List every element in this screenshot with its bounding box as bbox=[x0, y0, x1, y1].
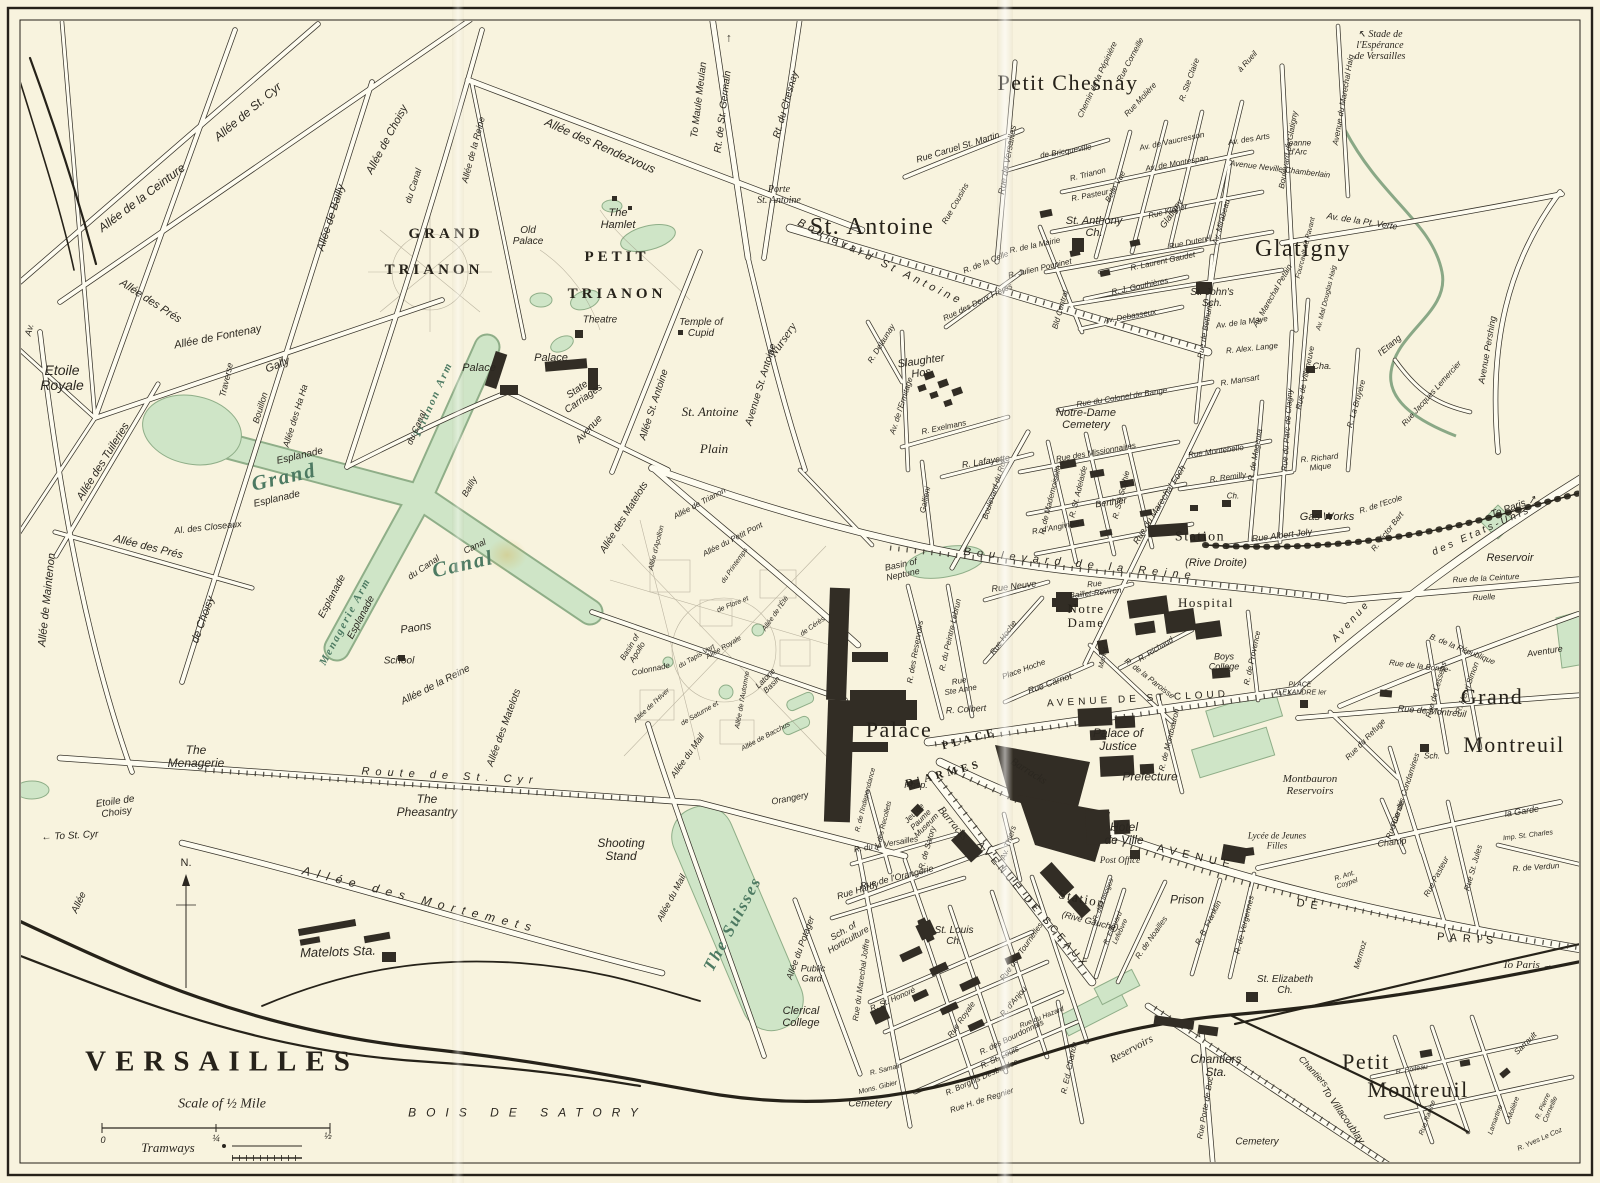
map-label: Rue du Hazard bbox=[1019, 1006, 1065, 1031]
map-label: R. des Recollets bbox=[874, 800, 894, 851]
map-label: Rue Pasteur bbox=[1423, 855, 1451, 898]
map-label: Rue St. Jules bbox=[1463, 844, 1484, 892]
map-label: Allée des Ha Ha bbox=[282, 383, 310, 448]
map-label: Rue du Marechal Foch bbox=[1132, 464, 1188, 546]
map-label: Glatigny bbox=[1159, 198, 1186, 231]
map-label: R. Pasteur bbox=[1071, 188, 1110, 204]
map-label: R. du V. Versailles bbox=[853, 835, 918, 855]
map-label: R. de l'Ecole bbox=[1358, 494, 1403, 516]
map-label: Allée de l'Automne bbox=[734, 671, 752, 730]
map-label: Rt. de St. Germain bbox=[714, 70, 735, 154]
map-label: Public Gard. bbox=[801, 964, 826, 983]
map-label: du Canal bbox=[406, 554, 441, 582]
map-label: Trianon Arm bbox=[412, 360, 456, 439]
map-label: Grand bbox=[1461, 685, 1523, 709]
map-label: de Choisy bbox=[190, 595, 218, 645]
map-label: R. Lafayette bbox=[961, 453, 1010, 470]
map-label: Bailly bbox=[460, 475, 479, 498]
map-label: du Tapis Vert bbox=[677, 644, 716, 671]
map-label: St. John's Sch. bbox=[1190, 288, 1234, 310]
map-label: Av. de la Pt. Verte bbox=[1326, 212, 1398, 233]
map-label: Av. de Montespan bbox=[1145, 154, 1209, 174]
map-label: Nursery bbox=[767, 320, 800, 359]
map-label: R. d'Angiviller bbox=[1031, 519, 1080, 537]
map-label: Rue Albert Joly bbox=[1251, 527, 1312, 544]
map-label: R. Remilly bbox=[1209, 471, 1246, 485]
map-label: Gas Works bbox=[1300, 512, 1354, 524]
map-label: Rue Cousins bbox=[941, 182, 971, 226]
map-label: Rue des Tournelles bbox=[999, 921, 1045, 982]
map-label: Allée des Prés bbox=[117, 278, 183, 327]
map-label: Allée d'Apollon bbox=[648, 525, 666, 572]
map-label: Palace of Justice bbox=[1093, 727, 1143, 753]
map-label: Bld Central bbox=[1051, 290, 1070, 330]
map-label: R. Boileau bbox=[1395, 1063, 1428, 1076]
map-label: Molière bbox=[1507, 1096, 1522, 1120]
map-label: R. Ed. Charton bbox=[1060, 1041, 1079, 1095]
map-label: Av. Mirabeau bbox=[1211, 199, 1232, 246]
map-label: R. des Reservoirs bbox=[906, 620, 926, 684]
map-label: Cemetery bbox=[848, 1100, 891, 1111]
map-label: Rue de Villeneuve bbox=[1295, 345, 1317, 410]
map-label: Av. de l'Ermitage bbox=[889, 376, 916, 435]
map-label: R. Pierre Corneille bbox=[1529, 1081, 1564, 1136]
map-label: Jeanne d'Arc bbox=[1285, 139, 1311, 156]
map-label: Palace bbox=[462, 363, 496, 375]
map-label: St. Louis Ch. bbox=[935, 926, 974, 948]
map-label: Palace bbox=[534, 353, 568, 365]
map-label: State Carriages bbox=[557, 374, 605, 417]
map-label: Allée St. Antoine bbox=[638, 368, 671, 441]
map-label: R. Exelmans bbox=[921, 419, 967, 437]
map-label: Lycée de Jeunes Filles bbox=[1248, 831, 1306, 850]
map-label: R. des Bourdonnais bbox=[979, 1019, 1046, 1058]
map-label: Rt. du Chesnay bbox=[772, 70, 801, 139]
map-label: ↖ Stade de l'Espérance de Versailles bbox=[1355, 30, 1406, 62]
map-label: Rue Carnot bbox=[1027, 672, 1074, 697]
map-label: Canal bbox=[462, 538, 487, 557]
map-label: Montreuil bbox=[1367, 1078, 1469, 1102]
map-label: Av. Mal Douglas Haig bbox=[1315, 265, 1338, 332]
map-label: R. de l'Independance bbox=[854, 767, 877, 833]
map-label: Notre-Dame Cemetery bbox=[1056, 408, 1116, 432]
map-label: la Garde bbox=[1504, 804, 1540, 819]
map-label: Allée des Matelots bbox=[599, 480, 651, 555]
map-label: Allée de Bailly bbox=[316, 183, 349, 252]
map-label: B. de la République bbox=[1428, 633, 1496, 667]
map-label: Ruelle bbox=[1472, 593, 1495, 603]
map-label: Montbauron Reservoirs bbox=[1283, 774, 1338, 798]
map-label: Theatre bbox=[583, 316, 617, 327]
map-label: Rue Porte de Buc bbox=[1196, 1076, 1215, 1140]
map-label: Allée du Petit Pont bbox=[702, 521, 765, 559]
map-label: Bouillon bbox=[252, 391, 271, 424]
map-label: Allée de Maintenon bbox=[37, 553, 59, 648]
map-label: R. St. Adelaide bbox=[1068, 465, 1089, 519]
map-label: de Flore et bbox=[716, 595, 750, 615]
map-label: Rue de Montreuil bbox=[1397, 704, 1466, 720]
map-label: PLACE bbox=[941, 727, 999, 753]
map-label: Rue Caruel St. Martin bbox=[915, 131, 1001, 166]
paper-stain bbox=[487, 538, 527, 572]
map-label: DE bbox=[1296, 898, 1325, 914]
map-label: R. de Magenta bbox=[1247, 428, 1265, 481]
map-label: du Canal bbox=[405, 410, 429, 447]
map-label: Allée des Tuileries bbox=[75, 421, 132, 503]
map-label: Allée de Choisy bbox=[365, 103, 411, 176]
map-label: R. de Mademoiselle bbox=[1038, 465, 1063, 536]
map-label: The Suisses bbox=[700, 873, 765, 974]
map-label: Avenue bbox=[575, 414, 606, 446]
map-label: St. Anthony Ch. bbox=[1066, 216, 1122, 240]
map-label: GRAND bbox=[409, 226, 484, 242]
map-label: Avenue Neville Chamberlain bbox=[1229, 160, 1330, 181]
map-label: Allée du Potager bbox=[785, 915, 817, 981]
map-label: R. Edouard Lefebvre bbox=[1103, 911, 1132, 949]
map-label: R. Victor Bart bbox=[1370, 511, 1406, 554]
map-label: R. de Noailles bbox=[1134, 915, 1170, 961]
map-label: Chantiers Sta. bbox=[1190, 1053, 1241, 1079]
map-label: Allée de l'Été bbox=[761, 595, 790, 633]
map-label: R. Delaunay bbox=[867, 323, 898, 365]
map-label: Lamartine bbox=[1487, 1104, 1505, 1136]
map-label: Hotel de Ville bbox=[1104, 821, 1143, 847]
map-canvas: Allée de la CeintureAllée de St. CyrAllé… bbox=[0, 0, 1600, 1183]
map-label: (Rive Gauche) bbox=[1061, 910, 1120, 933]
map-label: R. Ste Claire bbox=[1178, 57, 1202, 103]
map-label: Allée bbox=[70, 891, 89, 916]
map-label: Avenue St. Antoine bbox=[744, 343, 779, 428]
map-label: Rue Corneille bbox=[1116, 37, 1146, 84]
map-label: To Paris → bbox=[1503, 960, 1554, 972]
map-label: Boys College bbox=[1209, 652, 1240, 671]
map-label: Latone Basin bbox=[754, 667, 783, 696]
map-label: Rue des Missionnaires bbox=[1055, 442, 1136, 465]
map-label: Cemetery bbox=[1235, 1138, 1278, 1149]
map-label: R. Alex. Lange bbox=[1226, 342, 1279, 356]
map-label: R. de Provence bbox=[1243, 630, 1263, 686]
map-label: R. de la Celle bbox=[962, 250, 1010, 276]
map-label: R. Yves Le Coz bbox=[1516, 1127, 1563, 1154]
map-label: Allée des Mortemets bbox=[301, 864, 539, 935]
map-label: R. de la Paroisse bbox=[1122, 657, 1175, 701]
map-label: R. Ste Sophie bbox=[1112, 470, 1132, 520]
map-label: Berthier bbox=[1095, 496, 1128, 510]
map-label: (Rive Droite) bbox=[1185, 558, 1247, 570]
map-label: Clerical College bbox=[782, 1006, 819, 1030]
map-label: Mons. Gibier bbox=[858, 1080, 898, 1097]
map-label: Cha. bbox=[1312, 362, 1331, 372]
map-label: R. de Vergennes bbox=[1234, 895, 1257, 955]
map-label: R. St. Honoré bbox=[869, 986, 917, 1014]
map-label: AVENUE bbox=[1155, 843, 1236, 873]
map-label: Rue de Versailles bbox=[997, 125, 1019, 196]
map-label: The Pheasantry bbox=[397, 793, 458, 819]
map-label: de Saturne et bbox=[680, 700, 720, 728]
map-label: Slaughter Hos. bbox=[897, 353, 947, 383]
map-label: Sarrault bbox=[1513, 1031, 1539, 1057]
map-label: Rue Condé bbox=[1385, 800, 1407, 841]
map-label: Av. Marechal Petain bbox=[1252, 263, 1295, 329]
map-label: Champ bbox=[1377, 836, 1407, 849]
map-label: Traverse bbox=[218, 362, 235, 398]
map-label: Allée de St. Cyr bbox=[212, 80, 284, 144]
map-label: R. Colbert bbox=[945, 704, 986, 717]
map-label: R. d'Anjou bbox=[999, 985, 1029, 1019]
map-label: Rue de la Ceinture bbox=[1452, 573, 1519, 585]
map-label: Imp. St. Charles bbox=[1503, 829, 1554, 843]
map-label: Al. des Closeaux bbox=[174, 520, 242, 537]
map-label: AVENUE DE ST CLOUD bbox=[1047, 690, 1230, 710]
map-label: Rue Ste Anne bbox=[942, 675, 977, 698]
map-label: R. de la Mairie bbox=[1009, 236, 1061, 255]
map-label: Colonnade bbox=[631, 662, 671, 678]
map-label: Rue Hoche bbox=[989, 619, 1019, 657]
map-label: Shooting Stand bbox=[597, 837, 644, 863]
map-label: To Maule Meulan bbox=[690, 61, 710, 138]
map-label: Rue du Refuge bbox=[1344, 718, 1388, 763]
map-label: R. Richard Mique bbox=[1300, 452, 1339, 473]
map-label: Boulevard de Glatigny bbox=[1278, 110, 1300, 189]
label-layer: Allée de la CeintureAllée de St. CyrAllé… bbox=[0, 0, 1600, 1183]
map-label: Rue de Bethune bbox=[1197, 301, 1216, 359]
map-label: Allée de la Ceinture bbox=[96, 161, 187, 234]
map-label: Rue du Marechal Joffre bbox=[852, 938, 872, 1022]
map-label: Basin of Apollo bbox=[619, 633, 649, 667]
map-label: Allée de la Reine bbox=[461, 116, 488, 184]
map-label: Av. des Arts bbox=[1228, 132, 1271, 147]
map-label: du Canal bbox=[404, 167, 424, 204]
map-label: Menagerie Arm bbox=[318, 576, 374, 668]
map-label: Barracks bbox=[1008, 756, 1048, 787]
map-label: PETIT bbox=[584, 249, 649, 265]
map-label: Etoile de Choisy bbox=[95, 795, 137, 822]
map-label: Station bbox=[1175, 529, 1225, 544]
map-label: de Cérès bbox=[799, 616, 827, 638]
map-label: R. Laurent Gaudet bbox=[1130, 251, 1196, 273]
map-label: Allée des Rendezvous bbox=[543, 116, 657, 176]
map-label: Montreuil bbox=[1463, 733, 1565, 757]
map-label: PARIS bbox=[1437, 932, 1500, 948]
map-label: Plain bbox=[700, 442, 728, 456]
map-label: Rue du Colonel de Bange bbox=[1076, 387, 1168, 410]
map-label: Allée du Mail bbox=[656, 873, 689, 923]
map-label: ← To St. Cyr bbox=[41, 830, 98, 844]
map-label: Rue Duterel bbox=[1168, 234, 1212, 251]
map-label: Post Office bbox=[1100, 856, 1140, 866]
map-label: Belle Vue bbox=[1104, 170, 1128, 204]
map-label: du Printemps bbox=[720, 547, 750, 585]
map-label: Esplanade bbox=[317, 574, 349, 621]
map-label: Rue Neuve bbox=[991, 579, 1037, 594]
map-label: Allée de l'Hiver bbox=[632, 687, 671, 724]
map-label: Reservoir bbox=[1486, 553, 1533, 565]
map-label: Allée de Trianon bbox=[673, 487, 728, 522]
map-label: School bbox=[384, 657, 415, 668]
map-label: Boulevard de la Reine bbox=[963, 547, 1197, 583]
map-label: Esplanade bbox=[253, 489, 301, 510]
map-label: Temple of Cupid bbox=[679, 318, 723, 340]
map-label: Hosp. bbox=[904, 781, 928, 791]
map-label: Rue de l'Orangerie bbox=[859, 864, 934, 892]
map-label: St. Antoine bbox=[682, 405, 739, 419]
map-label: Orangery bbox=[771, 791, 810, 808]
map-label: Av. de Vaucresson bbox=[1139, 131, 1205, 153]
map-label: Allée des Matelots bbox=[486, 688, 524, 768]
map-label: R. Richaud bbox=[1137, 636, 1175, 664]
map-label: R. de Verdun bbox=[1512, 862, 1559, 874]
map-label: Chemin de la Pépinière bbox=[1077, 40, 1120, 119]
map-label: R. La Bruyère bbox=[1346, 379, 1368, 429]
map-label: R. J. Gouthières bbox=[1111, 277, 1169, 297]
map-label: Rue Hardy bbox=[836, 880, 880, 902]
map-label: D'ARMES bbox=[904, 759, 983, 791]
map-label: Boulevard St Antoine bbox=[795, 218, 965, 309]
map-label: Petit Chesnay bbox=[997, 71, 1138, 95]
map-label: Prefecture bbox=[1122, 771, 1177, 784]
map-label: R. B. Franklin bbox=[1194, 899, 1224, 946]
map-label: PLACE ALEXANDRE Ier bbox=[1274, 681, 1327, 696]
map-label: Basin of Neptune bbox=[883, 557, 920, 583]
map-label: TRIANON bbox=[385, 262, 484, 278]
map-label: Sch. bbox=[1424, 753, 1440, 762]
map-label: Mermoz bbox=[1353, 940, 1369, 970]
map-label: Chantiers bbox=[1296, 1055, 1329, 1090]
map-label: Allée de Bacchus bbox=[740, 721, 791, 753]
map-label: Prison bbox=[1170, 894, 1204, 907]
map-label: Etoile Royale bbox=[40, 363, 84, 393]
map-label: Station bbox=[1057, 887, 1106, 911]
map-label: des Etats-Unis bbox=[1431, 505, 1533, 558]
map-label: The Menagerie bbox=[168, 744, 225, 770]
map-label: R. Trianon bbox=[1069, 166, 1107, 183]
map-label: R. Mansart bbox=[1220, 374, 1260, 389]
map-label: R. St. Louis bbox=[980, 1045, 1021, 1071]
map-label: Reservoirs bbox=[1108, 1034, 1155, 1067]
map-label: Esplanade bbox=[346, 595, 378, 642]
map-label: Avenue du Marechal Haig bbox=[1332, 54, 1356, 146]
map-label: Allée de la Reine bbox=[400, 664, 472, 708]
map-label: Rue Molière bbox=[1123, 81, 1159, 118]
map-label: Esplanade bbox=[276, 446, 324, 467]
map-label: Boulevard du Roi bbox=[981, 459, 1008, 520]
map-label: Route de St. Cyr bbox=[361, 766, 539, 787]
map-label: Allée des Prés bbox=[112, 534, 184, 563]
map-label: Av. de la Maye bbox=[1216, 315, 1269, 331]
map-label: Palace bbox=[866, 718, 932, 742]
map-label: Av. Thiers bbox=[999, 825, 1018, 861]
map-label: Matelots Sta. bbox=[300, 944, 376, 961]
map-label: TRIANON bbox=[568, 286, 667, 302]
map-label: R. Borgnis Desbordes bbox=[944, 1058, 1019, 1098]
map-label: The Hamlet bbox=[601, 208, 636, 232]
map-label: Porte St. Antoine bbox=[757, 185, 801, 207]
map-label: Jeu de Paume Museum bbox=[901, 800, 941, 840]
map-label: Canal bbox=[430, 546, 496, 582]
map-label: Rue Jacques Lemercier bbox=[1401, 360, 1464, 429]
map-label: Market bbox=[1098, 647, 1111, 670]
map-label: AVENUE DE SCEAUX bbox=[974, 840, 1090, 972]
map-label: Petit bbox=[1342, 1050, 1390, 1074]
map-label: Rue Montebello bbox=[1188, 444, 1245, 460]
map-label: Av. Debasseux bbox=[1103, 308, 1157, 326]
map-label: Ch. bbox=[1227, 493, 1239, 502]
map-label: Rue Royale bbox=[946, 1000, 977, 1039]
map-label: Rue Baillet-Reviron bbox=[1068, 578, 1122, 601]
map-label: Notre Dame bbox=[1067, 602, 1104, 630]
map-label: Hospital bbox=[1178, 596, 1234, 610]
map-label: Paons bbox=[400, 621, 433, 637]
map-label: Fourcault de Pavant bbox=[1295, 217, 1317, 280]
map-label: Glatigny bbox=[1255, 237, 1351, 263]
map-label: Rue de Lesseps bbox=[1425, 661, 1449, 719]
map-label: Barracks bbox=[934, 805, 969, 844]
map-label: ↑ bbox=[726, 32, 732, 45]
map-label: R. Julien Poupinet bbox=[1007, 257, 1072, 280]
map-label: Old Palace bbox=[513, 226, 544, 248]
map-label: Rue Klaber bbox=[1148, 203, 1189, 221]
map-label: To Villacoublay bbox=[1318, 1086, 1365, 1147]
map-label: R. Ant. Coypel bbox=[1333, 869, 1358, 890]
map-label: Sch. of Horticulture bbox=[821, 916, 871, 956]
map-label: Allée de Fontenay bbox=[173, 324, 262, 353]
map-label: Allée du Mail bbox=[669, 732, 707, 780]
map-label: R. Henri Simon bbox=[1455, 661, 1482, 715]
map-label: Rue de la Bonne- bbox=[1389, 659, 1452, 675]
map-label: To Paris ↗ bbox=[1490, 495, 1538, 521]
map-label: Aventure bbox=[1527, 644, 1564, 659]
map-label: Avenue Pershing bbox=[1477, 315, 1498, 384]
map-label: St. Elizabeth Ch. bbox=[1257, 975, 1313, 997]
map-label: R. de Montbauron bbox=[1158, 708, 1182, 772]
map-label: Gallieni bbox=[919, 486, 933, 514]
map-label: de Bricqueville bbox=[1040, 143, 1093, 161]
map-label: R. Samain bbox=[869, 1062, 903, 1077]
map-label: Rue Racine bbox=[1418, 1100, 1438, 1137]
map-label: Rue du Parc de Clagny bbox=[1281, 388, 1295, 471]
map-label: l'Etang bbox=[1376, 334, 1403, 359]
map-label: R. de Satory bbox=[918, 825, 939, 870]
map-label: Gally bbox=[264, 356, 292, 376]
map-label: Grand bbox=[249, 459, 318, 496]
map-label: Avenue bbox=[1331, 599, 1374, 645]
map-label: Av. bbox=[24, 323, 37, 337]
map-label: R. du Peintre Lebrun bbox=[938, 598, 963, 672]
map-label: à Rueil bbox=[1236, 50, 1259, 74]
map-label: Rue des Condamines bbox=[1390, 752, 1422, 828]
map-label: Allée Royale bbox=[705, 635, 743, 661]
map-label: Rue H. de Regnier bbox=[949, 1087, 1015, 1116]
map-label: Place Hoche bbox=[1001, 658, 1047, 682]
map-label: St. Antoine bbox=[810, 215, 935, 241]
map-label: R. de Limoges bbox=[1092, 878, 1116, 923]
map-label: BOIS DE SATORY bbox=[408, 1107, 648, 1120]
map-label: Rue des Deux Frères bbox=[942, 282, 1014, 323]
